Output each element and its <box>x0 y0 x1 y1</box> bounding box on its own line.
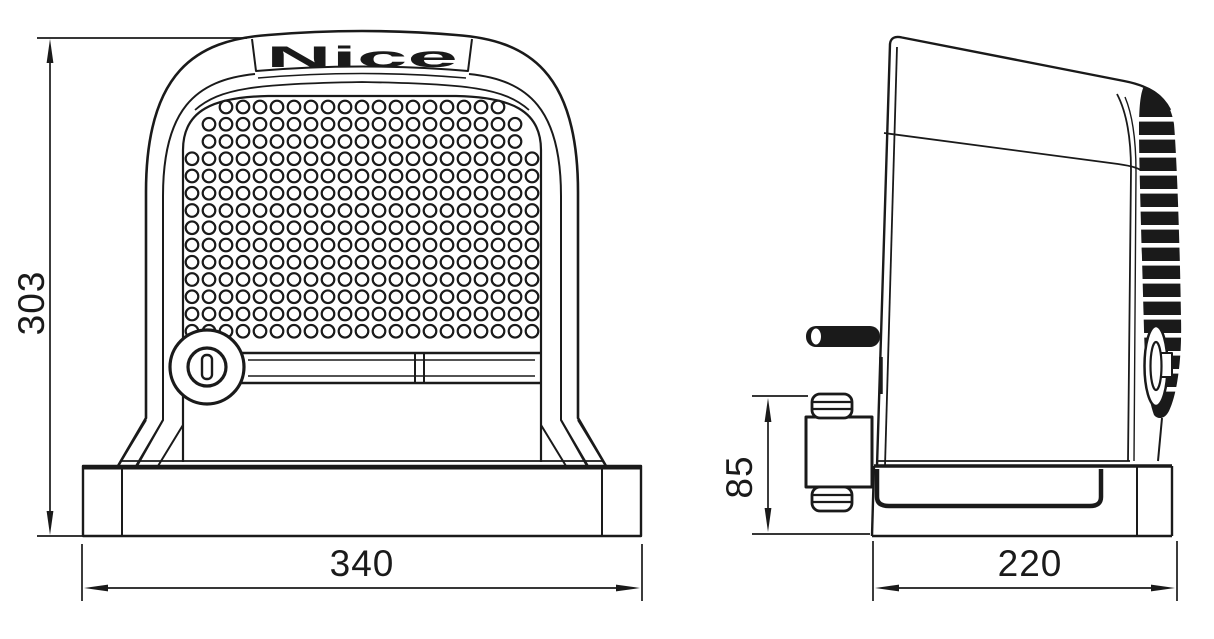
perforation-hole <box>322 187 335 200</box>
arrow-right-icon <box>1151 585 1175 592</box>
arrow-left-icon <box>84 585 108 592</box>
dim-width-label: 340 <box>330 543 395 584</box>
perforation-hole <box>203 308 216 321</box>
perforation-hole <box>203 290 216 303</box>
perforation-hole <box>407 221 420 234</box>
perforation-hole <box>526 204 539 217</box>
perforation-hole <box>526 256 539 269</box>
perforation-hole <box>373 187 386 200</box>
perforation-hole <box>407 118 420 131</box>
perforation-hole <box>373 204 386 217</box>
perforation-hole <box>220 101 233 114</box>
perforation-hole <box>220 135 233 148</box>
perforation-hole <box>322 273 335 286</box>
perforation-hole <box>475 204 488 217</box>
perforation-hole <box>271 273 284 286</box>
perforation-hole <box>424 118 437 131</box>
release-lock <box>170 330 541 404</box>
perforation-hole <box>339 101 352 114</box>
perforation-hole <box>458 152 471 165</box>
perforation-hole <box>458 170 471 183</box>
perforation-hole <box>203 170 216 183</box>
perforation-hole <box>373 101 386 114</box>
perforation-hole <box>373 152 386 165</box>
perforation-hole <box>475 239 488 252</box>
perforation-hole <box>441 101 454 114</box>
perforation-hole <box>237 170 250 183</box>
perforation-hole <box>254 152 267 165</box>
perforation-hole <box>288 152 301 165</box>
perforation-hole <box>509 118 522 131</box>
side-back-inner-line-1 <box>1117 94 1131 461</box>
perforation-hole <box>526 308 539 321</box>
perforation-hole <box>356 135 369 148</box>
perforation-hole <box>237 101 250 114</box>
perforation-hole <box>458 256 471 269</box>
perforation-hole <box>458 273 471 286</box>
perforation-hole <box>322 308 335 321</box>
perforation-hole <box>322 325 335 338</box>
pinion-body <box>806 417 872 487</box>
side-pinion-gear <box>806 394 872 511</box>
perforation-hole <box>339 221 352 234</box>
perforation-hole <box>373 290 386 303</box>
perforation-hole <box>305 221 318 234</box>
perforation-hole <box>407 187 420 200</box>
perforation-hole <box>288 239 301 252</box>
perforation-hole <box>322 204 335 217</box>
perforation-hole <box>186 256 199 269</box>
perforation-hole <box>254 290 267 303</box>
perforation-hole <box>424 135 437 148</box>
perforation-hole <box>424 187 437 200</box>
arrow-down-icon <box>765 508 772 532</box>
perforation-hole <box>305 256 318 269</box>
perforation-hole <box>356 204 369 217</box>
perforation-hole <box>237 325 250 338</box>
perforation-hole <box>407 273 420 286</box>
perforation-hole <box>186 170 199 183</box>
perforation-hole <box>254 308 267 321</box>
perforation-hole <box>271 187 284 200</box>
perforation-hole <box>373 256 386 269</box>
dimensions: 303 340 85 220 <box>11 38 1177 601</box>
perforation-hole <box>356 118 369 131</box>
perforation-hole <box>407 239 420 252</box>
perforation-hole <box>492 170 505 183</box>
perforation-hole <box>322 135 335 148</box>
arrow-down-icon <box>47 511 54 535</box>
logo-plate-inner-line <box>258 74 466 79</box>
perforation-hole <box>237 204 250 217</box>
front-inner-outline-right <box>469 74 587 466</box>
perforation-hole <box>322 118 335 131</box>
perforation-hole <box>322 221 335 234</box>
perforation-hole <box>339 187 352 200</box>
perforation-hole <box>186 204 199 217</box>
perforation-hole <box>458 290 471 303</box>
side-lid-seam <box>884 133 1146 174</box>
perforation-hole <box>237 308 250 321</box>
perforation-hole <box>254 204 267 217</box>
arrow-up-icon <box>765 398 772 422</box>
perforation-hole <box>356 221 369 234</box>
perforation-hole <box>322 101 335 114</box>
perforation-hole <box>441 239 454 252</box>
perforation-hole <box>441 204 454 217</box>
perforation-hole <box>458 101 471 114</box>
perforation-hole <box>475 290 488 303</box>
perforation-hole <box>186 152 199 165</box>
perforation-hole <box>237 135 250 148</box>
side-pin <box>806 326 881 394</box>
perforation-hole <box>509 239 522 252</box>
perforation-hole <box>305 239 318 252</box>
perforation-hole <box>339 308 352 321</box>
perforation-hole <box>475 170 488 183</box>
perforation-hole <box>237 187 250 200</box>
perforation-hole <box>407 256 420 269</box>
perforation-hole <box>407 101 420 114</box>
perforation-hole <box>356 256 369 269</box>
perforation-hole <box>305 101 318 114</box>
perforation-hole <box>475 325 488 338</box>
perforation-hole <box>254 239 267 252</box>
perforation-hole <box>271 170 284 183</box>
perforation-hole <box>305 308 318 321</box>
perforation-hole <box>203 221 216 234</box>
perforation-hole <box>458 187 471 200</box>
perforation-hole <box>356 187 369 200</box>
perforation-hole <box>390 239 403 252</box>
perforation-hole <box>492 204 505 217</box>
perforation-hole <box>458 118 471 131</box>
perforation-hole <box>526 290 539 303</box>
perforation-hole <box>220 187 233 200</box>
drawing-canvas: Nice <box>0 0 1214 639</box>
perforation-hole <box>237 221 250 234</box>
dim-depth: 220 <box>873 541 1177 601</box>
perforation-hole <box>475 135 488 148</box>
perforation-hole <box>288 290 301 303</box>
perforation-hole <box>237 239 250 252</box>
perforation-hole <box>509 256 522 269</box>
perforation-hole <box>526 325 539 338</box>
perforation-hole <box>220 308 233 321</box>
perforation-hole <box>339 273 352 286</box>
side-lock-inner <box>1151 342 1162 390</box>
perforation-hole <box>509 135 522 148</box>
perforation-hole <box>390 187 403 200</box>
perforation-hole <box>509 187 522 200</box>
perforation-hole <box>339 204 352 217</box>
perforation-hole <box>288 187 301 200</box>
perforation-hole <box>356 308 369 321</box>
front-flare-lines-left <box>118 420 183 466</box>
perforation-hole <box>509 170 522 183</box>
perforation-hole <box>407 308 420 321</box>
perforation-hole <box>424 290 437 303</box>
perforation-hole <box>237 118 250 131</box>
perforation-hole <box>322 239 335 252</box>
perforation-hole <box>458 239 471 252</box>
keyhole-slot <box>202 355 212 379</box>
perforation-hole <box>203 135 216 148</box>
release-pin-highlight <box>811 329 821 345</box>
perforation-hole <box>492 187 505 200</box>
perforation-hole <box>271 290 284 303</box>
dim-depth-label: 220 <box>998 543 1063 584</box>
perforation-hole <box>526 221 539 234</box>
perforation-hole <box>492 290 505 303</box>
perforation-hole <box>186 221 199 234</box>
perforation-hole <box>322 256 335 269</box>
perforation-hole <box>254 273 267 286</box>
perforation-hole <box>492 273 505 286</box>
perforation-hole <box>288 256 301 269</box>
perforation-hole <box>441 170 454 183</box>
perforation-hole <box>407 290 420 303</box>
arrow-right-icon <box>616 585 640 592</box>
perforation-hole <box>441 325 454 338</box>
perforation-hole <box>288 325 301 338</box>
perforation-hole <box>305 135 318 148</box>
perforation-hole <box>424 221 437 234</box>
perforation-hole <box>390 308 403 321</box>
perforation-hole <box>526 239 539 252</box>
perforation-hole <box>390 135 403 148</box>
perforation-hole <box>356 170 369 183</box>
perforation-hole <box>186 187 199 200</box>
front-inner-outline-left <box>137 74 255 466</box>
perforation-hole <box>424 256 437 269</box>
perforation-hole <box>356 325 369 338</box>
perforation-hole <box>203 118 216 131</box>
perforation-hole <box>373 135 386 148</box>
dim-overall-width: 340 <box>82 543 642 601</box>
side-base-recess <box>877 469 1101 506</box>
perforation-hole <box>186 239 199 252</box>
nice-logo-plate: Nice <box>252 39 472 78</box>
perforation-hole <box>203 187 216 200</box>
perforation-hole <box>254 118 267 131</box>
perforation-hole <box>305 187 318 200</box>
perforation-hole <box>339 118 352 131</box>
perforation-hole <box>407 170 420 183</box>
perforation-hole <box>186 273 199 286</box>
perforation-hole <box>526 187 539 200</box>
perforation-hole <box>305 118 318 131</box>
perforation-hole <box>441 290 454 303</box>
perforation-hole <box>458 135 471 148</box>
perforation-hole <box>441 308 454 321</box>
front-base-outline <box>83 466 641 536</box>
front-view: Nice <box>83 31 641 536</box>
perforation-hole <box>305 170 318 183</box>
perforation-hole <box>424 101 437 114</box>
perforation-hole <box>526 152 539 165</box>
perforation-hole <box>407 325 420 338</box>
perforation-hole <box>339 290 352 303</box>
pinion-top-cap <box>812 394 852 418</box>
perforation-hole <box>203 204 216 217</box>
perforation-hole <box>424 152 437 165</box>
perforation-hole <box>288 308 301 321</box>
perforation-hole <box>305 290 318 303</box>
perforation-hole <box>373 221 386 234</box>
perforation-hole <box>220 221 233 234</box>
perforation-hole <box>390 273 403 286</box>
perforation-hole <box>356 152 369 165</box>
perforation-hole <box>288 170 301 183</box>
perforation-hole <box>220 273 233 286</box>
perforation-hole <box>492 325 505 338</box>
perforation-hole <box>492 308 505 321</box>
perforation-hole <box>288 204 301 217</box>
perforation-hole <box>254 135 267 148</box>
perforation-hole <box>509 152 522 165</box>
perforation-hole <box>458 204 471 217</box>
perforation-hole <box>322 290 335 303</box>
perforation-hole <box>509 221 522 234</box>
perforation-hole <box>492 101 505 114</box>
perforation-hole <box>305 273 318 286</box>
perforation-hole <box>390 221 403 234</box>
perforation-hole <box>475 308 488 321</box>
perforation-hole <box>475 187 488 200</box>
perforation-hole <box>492 118 505 131</box>
perforation-hole <box>441 273 454 286</box>
perforation-hole <box>288 135 301 148</box>
perforation-hole <box>526 170 539 183</box>
perforation-hole <box>509 273 522 286</box>
side-lock-tab <box>1161 353 1172 377</box>
perforation-hole <box>271 325 284 338</box>
perforation-hole <box>339 325 352 338</box>
perforation-hole <box>390 256 403 269</box>
perforation-hole <box>509 325 522 338</box>
perforation-hole <box>339 256 352 269</box>
perforation-hole <box>220 204 233 217</box>
perforation-hole <box>271 101 284 114</box>
perforation-hole <box>373 273 386 286</box>
perforation-hole <box>441 118 454 131</box>
perforation-hole <box>322 152 335 165</box>
perforation-hole <box>424 204 437 217</box>
perforation-hole <box>203 273 216 286</box>
perforation-hole <box>407 135 420 148</box>
perforation-hole <box>322 170 335 183</box>
arrow-left-icon <box>875 585 899 592</box>
perforation-hole <box>271 118 284 131</box>
perforation-hole <box>356 239 369 252</box>
perforation-hole <box>254 187 267 200</box>
perforation-hole <box>407 204 420 217</box>
perforation-hole <box>271 135 284 148</box>
perforation-hole <box>288 101 301 114</box>
perforation-hole <box>390 101 403 114</box>
perforation-hole <box>288 273 301 286</box>
perforation-hole <box>203 152 216 165</box>
perforation-hole <box>509 308 522 321</box>
perforation-hole <box>441 135 454 148</box>
perforation-hole <box>424 325 437 338</box>
perforation-hole <box>509 204 522 217</box>
perforation-hole <box>339 170 352 183</box>
front-flare-lines-right <box>541 420 606 466</box>
perforation-hole <box>271 239 284 252</box>
perforation-hole <box>356 273 369 286</box>
perforation-hole <box>407 152 420 165</box>
perforation-hole <box>254 256 267 269</box>
arrow-up-icon <box>47 39 54 63</box>
perforation-hole <box>271 204 284 217</box>
perforation-hole <box>339 152 352 165</box>
perforation-hole <box>390 290 403 303</box>
perforation-hole <box>492 221 505 234</box>
perforation-hole <box>203 239 216 252</box>
side-view <box>806 37 1187 536</box>
perforation-hole <box>475 118 488 131</box>
perforation-hole <box>288 118 301 131</box>
perforation-hole <box>305 152 318 165</box>
perforation-hole <box>475 256 488 269</box>
perforation-hole <box>390 325 403 338</box>
perforation-hole <box>271 308 284 321</box>
perforation-hole <box>475 152 488 165</box>
perforation-hole <box>271 256 284 269</box>
perforation-hole <box>220 239 233 252</box>
perforation-hole <box>237 256 250 269</box>
perforation-hole <box>220 118 233 131</box>
perforation-hole <box>305 204 318 217</box>
perforation-hole <box>373 170 386 183</box>
perforation-hole <box>475 221 488 234</box>
perforation-hole <box>492 256 505 269</box>
perforation-hole <box>271 152 284 165</box>
perforation-hole <box>424 308 437 321</box>
perforation-hole <box>220 170 233 183</box>
perforation-hole <box>458 325 471 338</box>
front-base <box>83 420 641 536</box>
perforation-hole <box>458 221 471 234</box>
perforation-hole <box>220 152 233 165</box>
perforation-hole <box>237 273 250 286</box>
perforation-hole <box>526 273 539 286</box>
technical-drawing: Nice <box>0 0 1214 639</box>
perforation-hole <box>390 204 403 217</box>
side-grip-band <box>1137 86 1187 418</box>
perforation-hole <box>305 325 318 338</box>
perforation-hole <box>492 135 505 148</box>
perforation-hole <box>390 152 403 165</box>
side-body <box>877 37 1170 466</box>
perforation-hole <box>492 239 505 252</box>
pinion-bottom-cap <box>812 487 852 511</box>
dim-height-label: 303 <box>11 271 52 336</box>
front-face-panel <box>183 96 541 462</box>
perforation-hole <box>373 118 386 131</box>
perforation-hole <box>254 325 267 338</box>
perforation-hole <box>220 256 233 269</box>
perforation-hole <box>339 239 352 252</box>
perforation-hole <box>186 290 199 303</box>
perforation-hole <box>509 290 522 303</box>
perforation-hole <box>492 152 505 165</box>
perforation-hole <box>254 101 267 114</box>
perforation-hole <box>373 239 386 252</box>
perforation-hole <box>288 221 301 234</box>
